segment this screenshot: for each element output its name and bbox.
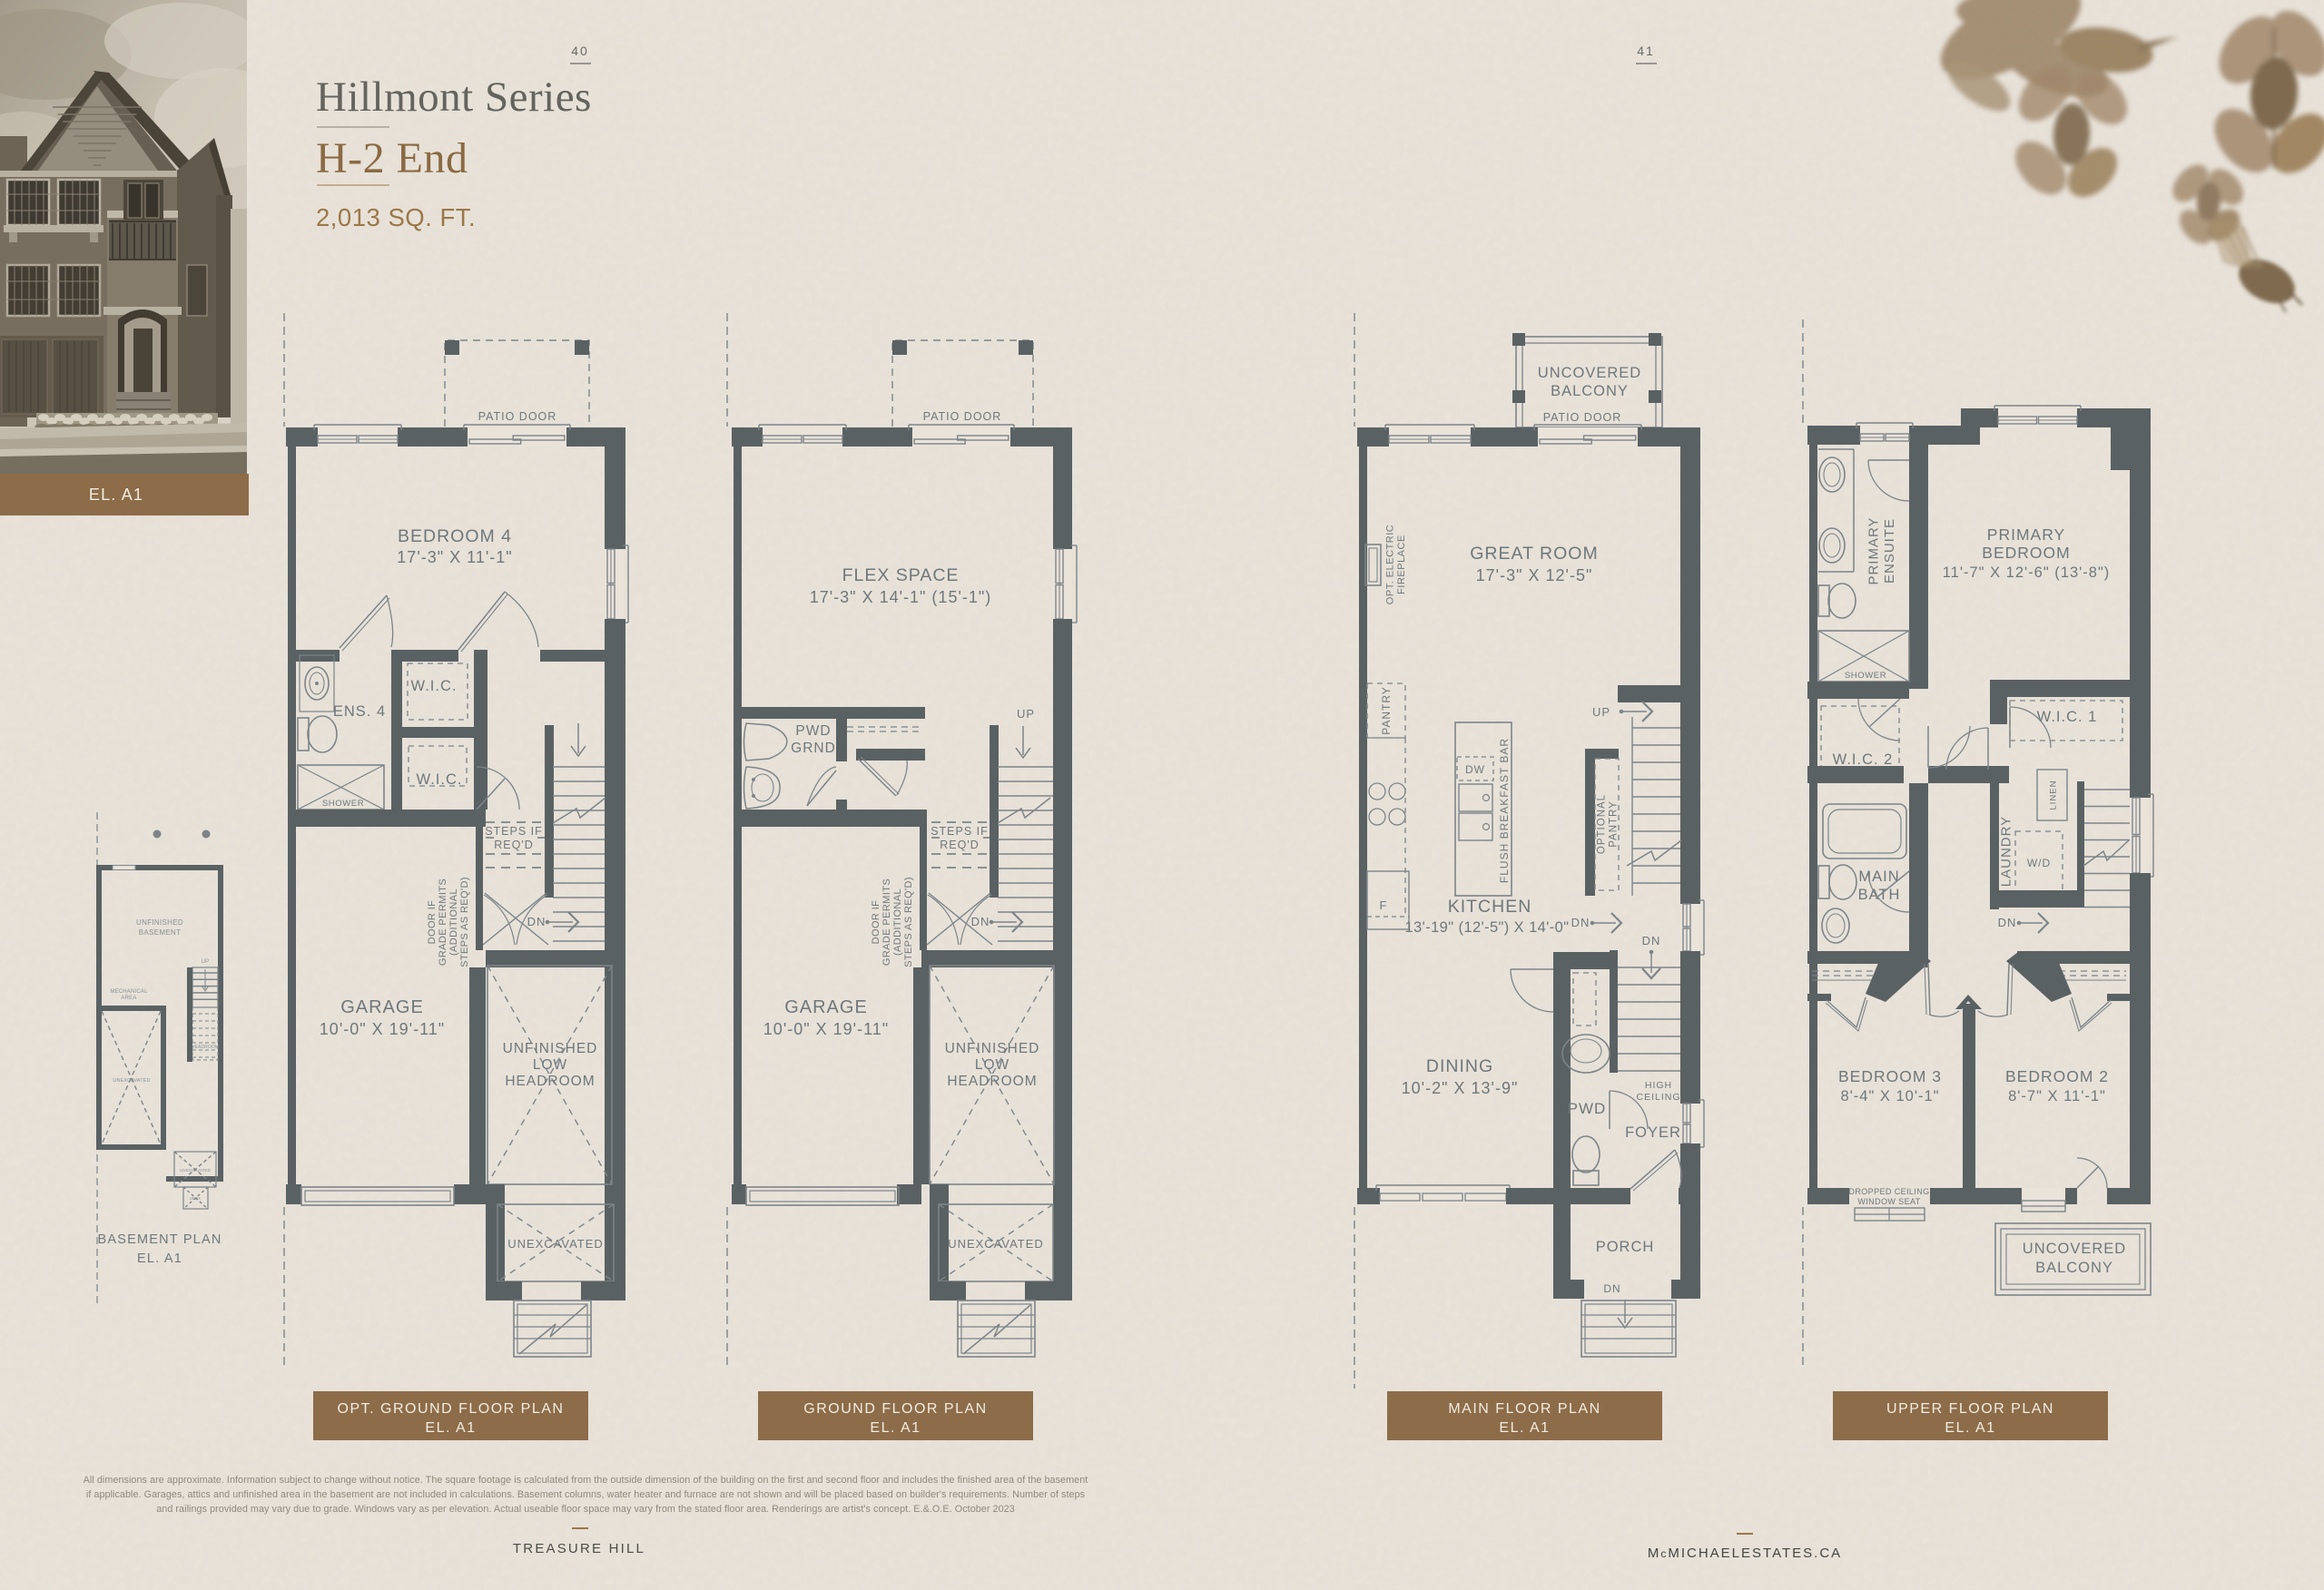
svg-text:EL. A1: EL. A1 — [870, 1420, 921, 1436]
svg-text:GRND: GRND — [791, 741, 836, 756]
svg-text:MAIN FLOOR PLAN: MAIN FLOOR PLAN — [1448, 1401, 1600, 1417]
svg-text:HEADROOM: HEADROOM — [947, 1074, 1037, 1089]
svg-text:UP: UP — [1592, 705, 1610, 719]
svg-text:STEPS AS REQ'D): STEPS AS REQ'D) — [903, 877, 914, 967]
svg-text:13'-19" (12'-5") X 14'-0": 13'-19" (12'-5") X 14'-0" — [1404, 919, 1569, 936]
svg-text:WINDOW SEAT: WINDOW SEAT — [1857, 1197, 1920, 1206]
svg-text:UNCOVERED: UNCOVERED — [1538, 365, 1641, 381]
svg-text:OPT. GROUND FLOOR PLAN: OPT. GROUND FLOOR PLAN — [338, 1401, 565, 1417]
svg-text:STEPS IF: STEPS IF — [931, 825, 989, 838]
svg-text:11'-7" X 12'-6" (13'-8"): 11'-7" X 12'-6" (13'-8") — [1943, 564, 2111, 581]
svg-text:UNEXCAVATED: UNEXCAVATED — [948, 1237, 1044, 1251]
svg-text:HEADROOM: HEADROOM — [505, 1074, 595, 1089]
svg-text:DOOR IF: DOOR IF — [871, 900, 881, 945]
svg-text:DROPPED CEILING: DROPPED CEILING — [1848, 1187, 1929, 1196]
svg-text:DN: DN — [1603, 1282, 1620, 1295]
svg-text:LINEN: LINEN — [2048, 780, 2058, 810]
svg-text:HIGH: HIGH — [1645, 1080, 1672, 1091]
svg-text:STEPS AS REQ'D): STEPS AS REQ'D) — [459, 877, 470, 967]
svg-text:10'-0" X 19'-11": 10'-0" X 19'-11" — [320, 1020, 445, 1038]
svg-text:TREASURE HILL: TREASURE HILL — [513, 1541, 645, 1556]
svg-text:GRADE PERMITS: GRADE PERMITS — [438, 878, 448, 966]
svg-text:UNEXCAVATED: UNEXCAVATED — [180, 1168, 212, 1173]
svg-text:40: 40 — [571, 44, 589, 58]
svg-text:MECHANICAL: MECHANICAL — [110, 989, 148, 995]
svg-text:AREA: AREA — [121, 996, 136, 1001]
svg-text:REQ'D: REQ'D — [494, 839, 534, 851]
svg-text:BASEMENT PLAN: BASEMENT PLAN — [97, 1232, 222, 1247]
svg-text:W.I.C. 2: W.I.C. 2 — [1833, 751, 1894, 768]
svg-text:PRIMARY: PRIMARY — [1866, 516, 1882, 584]
svg-text:ENSUITE: ENSUITE — [1882, 518, 1897, 584]
svg-text:FOYER: FOYER — [1625, 1124, 1681, 1141]
svg-text:UNFINISHED: UNFINISHED — [503, 1041, 598, 1056]
svg-text:EL. A1: EL. A1 — [425, 1420, 476, 1436]
svg-text:8'-7" X 11'-1": 8'-7" X 11'-1" — [2008, 1088, 2106, 1104]
svg-text:BEDROOM 2: BEDROOM 2 — [2005, 1067, 2109, 1085]
svg-text:17'-3" X 14'-1" (15'-1"): 17'-3" X 14'-1" (15'-1") — [810, 588, 992, 606]
svg-text:REQ'D: REQ'D — [940, 839, 980, 851]
svg-text:DW: DW — [1465, 763, 1485, 776]
svg-text:FIREPLACE: FIREPLACE — [1396, 535, 1407, 594]
svg-text:DN: DN — [1642, 934, 1661, 947]
svg-text:BEDROOM 4: BEDROOM 4 — [398, 526, 512, 546]
svg-text:W/D: W/D — [2027, 857, 2051, 869]
svg-text:DN: DN — [1998, 916, 2017, 929]
svg-text:41: 41 — [1637, 44, 1655, 58]
svg-text:LOW: LOW — [533, 1057, 567, 1073]
svg-text:LAUNDRY: LAUNDRY — [1998, 816, 2014, 887]
svg-text:PWD: PWD — [795, 723, 831, 739]
svg-text:PATIO DOOR: PATIO DOOR — [923, 410, 1002, 423]
svg-text:BEDROOM 3: BEDROOM 3 — [1838, 1067, 1942, 1085]
svg-text:BALCONY: BALCONY — [2035, 1260, 2113, 1276]
svg-text:HEADROOM: HEADROOM — [192, 1045, 219, 1050]
svg-text:McMICHAELESTATES.CA: McMICHAELESTATES.CA — [1648, 1546, 1842, 1561]
svg-text:10'-0" X 19'-11": 10'-0" X 19'-11" — [763, 1020, 889, 1038]
svg-text:UPPER FLOOR PLAN: UPPER FLOOR PLAN — [1886, 1401, 2054, 1417]
svg-text:2,013 SQ. FT.: 2,013 SQ. FT. — [316, 203, 476, 231]
svg-text:17'-3" X 12'-5": 17'-3" X 12'-5" — [1476, 566, 1593, 584]
svg-text:PANTRY: PANTRY — [1380, 686, 1393, 735]
svg-text:STEPS IF: STEPS IF — [485, 825, 543, 838]
svg-text:W.I.C. 1: W.I.C. 1 — [2037, 709, 2098, 725]
svg-text:PWD: PWD — [1568, 1100, 1607, 1117]
svg-text:UNFINISHED: UNFINISHED — [136, 918, 183, 927]
svg-text:(ADDITIONAL: (ADDITIONAL — [892, 888, 903, 956]
svg-text:UNFINISHED: UNFINISHED — [945, 1041, 1040, 1056]
svg-text:DN: DN — [1571, 916, 1590, 929]
svg-text:GARAGE: GARAGE — [784, 997, 868, 1017]
svg-text:UNCOVERED: UNCOVERED — [2023, 1241, 2126, 1257]
svg-text:GRADE PERMITS: GRADE PERMITS — [881, 878, 892, 966]
svg-text:H-2 End: H-2 End — [316, 134, 468, 182]
svg-text:BALCONY: BALCONY — [1551, 383, 1629, 399]
svg-text:DINING: DINING — [1426, 1056, 1493, 1076]
svg-text:10'-2" X 13'-9": 10'-2" X 13'-9" — [1402, 1079, 1519, 1097]
svg-text:GREAT ROOM: GREAT ROOM — [1470, 544, 1598, 564]
svg-text:BEDROOM: BEDROOM — [1982, 544, 2070, 562]
svg-text:EL. A1: EL. A1 — [1945, 1420, 1995, 1436]
svg-text:if applicable. Garages, attics: if applicable. Garages, attics and unfin… — [86, 1489, 1086, 1500]
svg-text:KITCHEN: KITCHEN — [1448, 897, 1532, 917]
svg-text:DOOR IF: DOOR IF — [427, 900, 438, 945]
svg-text:SHOWER: SHOWER — [1845, 671, 1886, 681]
svg-text:FLUSH BREAKFAST BAR: FLUSH BREAKFAST BAR — [1498, 738, 1511, 883]
svg-text:PORCH: PORCH — [1596, 1239, 1655, 1255]
svg-text:ENS. 4: ENS. 4 — [333, 703, 386, 720]
svg-text:(ADDITIONAL: (ADDITIONAL — [448, 888, 459, 956]
svg-text:8'-4" X 10'-1": 8'-4" X 10'-1" — [1840, 1088, 1939, 1104]
svg-text:GARAGE: GARAGE — [340, 997, 424, 1017]
svg-text:UNEX: UNEX — [190, 1196, 201, 1201]
svg-text:and railings provided may vary: and railings provided may vary due to gr… — [156, 1504, 1015, 1515]
svg-text:SHOWER: SHOWER — [322, 799, 364, 809]
svg-text:Hillmont Series: Hillmont Series — [316, 74, 592, 121]
svg-text:W.I.C.: W.I.C. — [417, 771, 463, 788]
svg-text:17'-3" X 11'-1": 17'-3" X 11'-1" — [397, 548, 512, 566]
svg-text:PRIMARY: PRIMARY — [1987, 525, 2065, 544]
svg-text:UP: UP — [202, 959, 210, 965]
svg-text:MAIN: MAIN — [1858, 869, 1899, 885]
svg-text:F: F — [1380, 898, 1388, 912]
svg-text:DN: DN — [971, 915, 990, 928]
svg-text:PATIO DOOR: PATIO DOOR — [1543, 411, 1622, 424]
svg-text:W.I.C.: W.I.C. — [411, 678, 458, 694]
svg-text:LOW: LOW — [975, 1057, 1009, 1073]
svg-text:OPTIONAL: OPTIONAL — [1596, 794, 1607, 854]
svg-text:EL. A1: EL. A1 — [89, 486, 143, 504]
svg-text:EL. A1: EL. A1 — [137, 1251, 182, 1266]
svg-text:OPT. ELECTRIC: OPT. ELECTRIC — [1385, 525, 1396, 604]
svg-text:DN: DN — [527, 915, 547, 928]
svg-text:UP: UP — [1017, 707, 1035, 721]
svg-text:EL. A1: EL. A1 — [1499, 1420, 1550, 1436]
svg-text:BASEMENT: BASEMENT — [139, 928, 181, 937]
svg-text:UNEXCAVATED: UNEXCAVATED — [507, 1237, 604, 1251]
svg-text:GROUND FLOOR PLAN: GROUND FLOOR PLAN — [803, 1401, 987, 1417]
svg-text:PANTRY: PANTRY — [1609, 800, 1620, 848]
svg-text:FLEX SPACE: FLEX SPACE — [842, 565, 960, 585]
svg-text:PATIO DOOR: PATIO DOOR — [478, 410, 557, 423]
svg-text:All dimensions are approximate: All dimensions are approximate. Informat… — [84, 1475, 1088, 1486]
svg-text:CEILING: CEILING — [1636, 1092, 1680, 1103]
svg-text:UNEXCAVATED: UNEXCAVATED — [113, 1078, 150, 1084]
